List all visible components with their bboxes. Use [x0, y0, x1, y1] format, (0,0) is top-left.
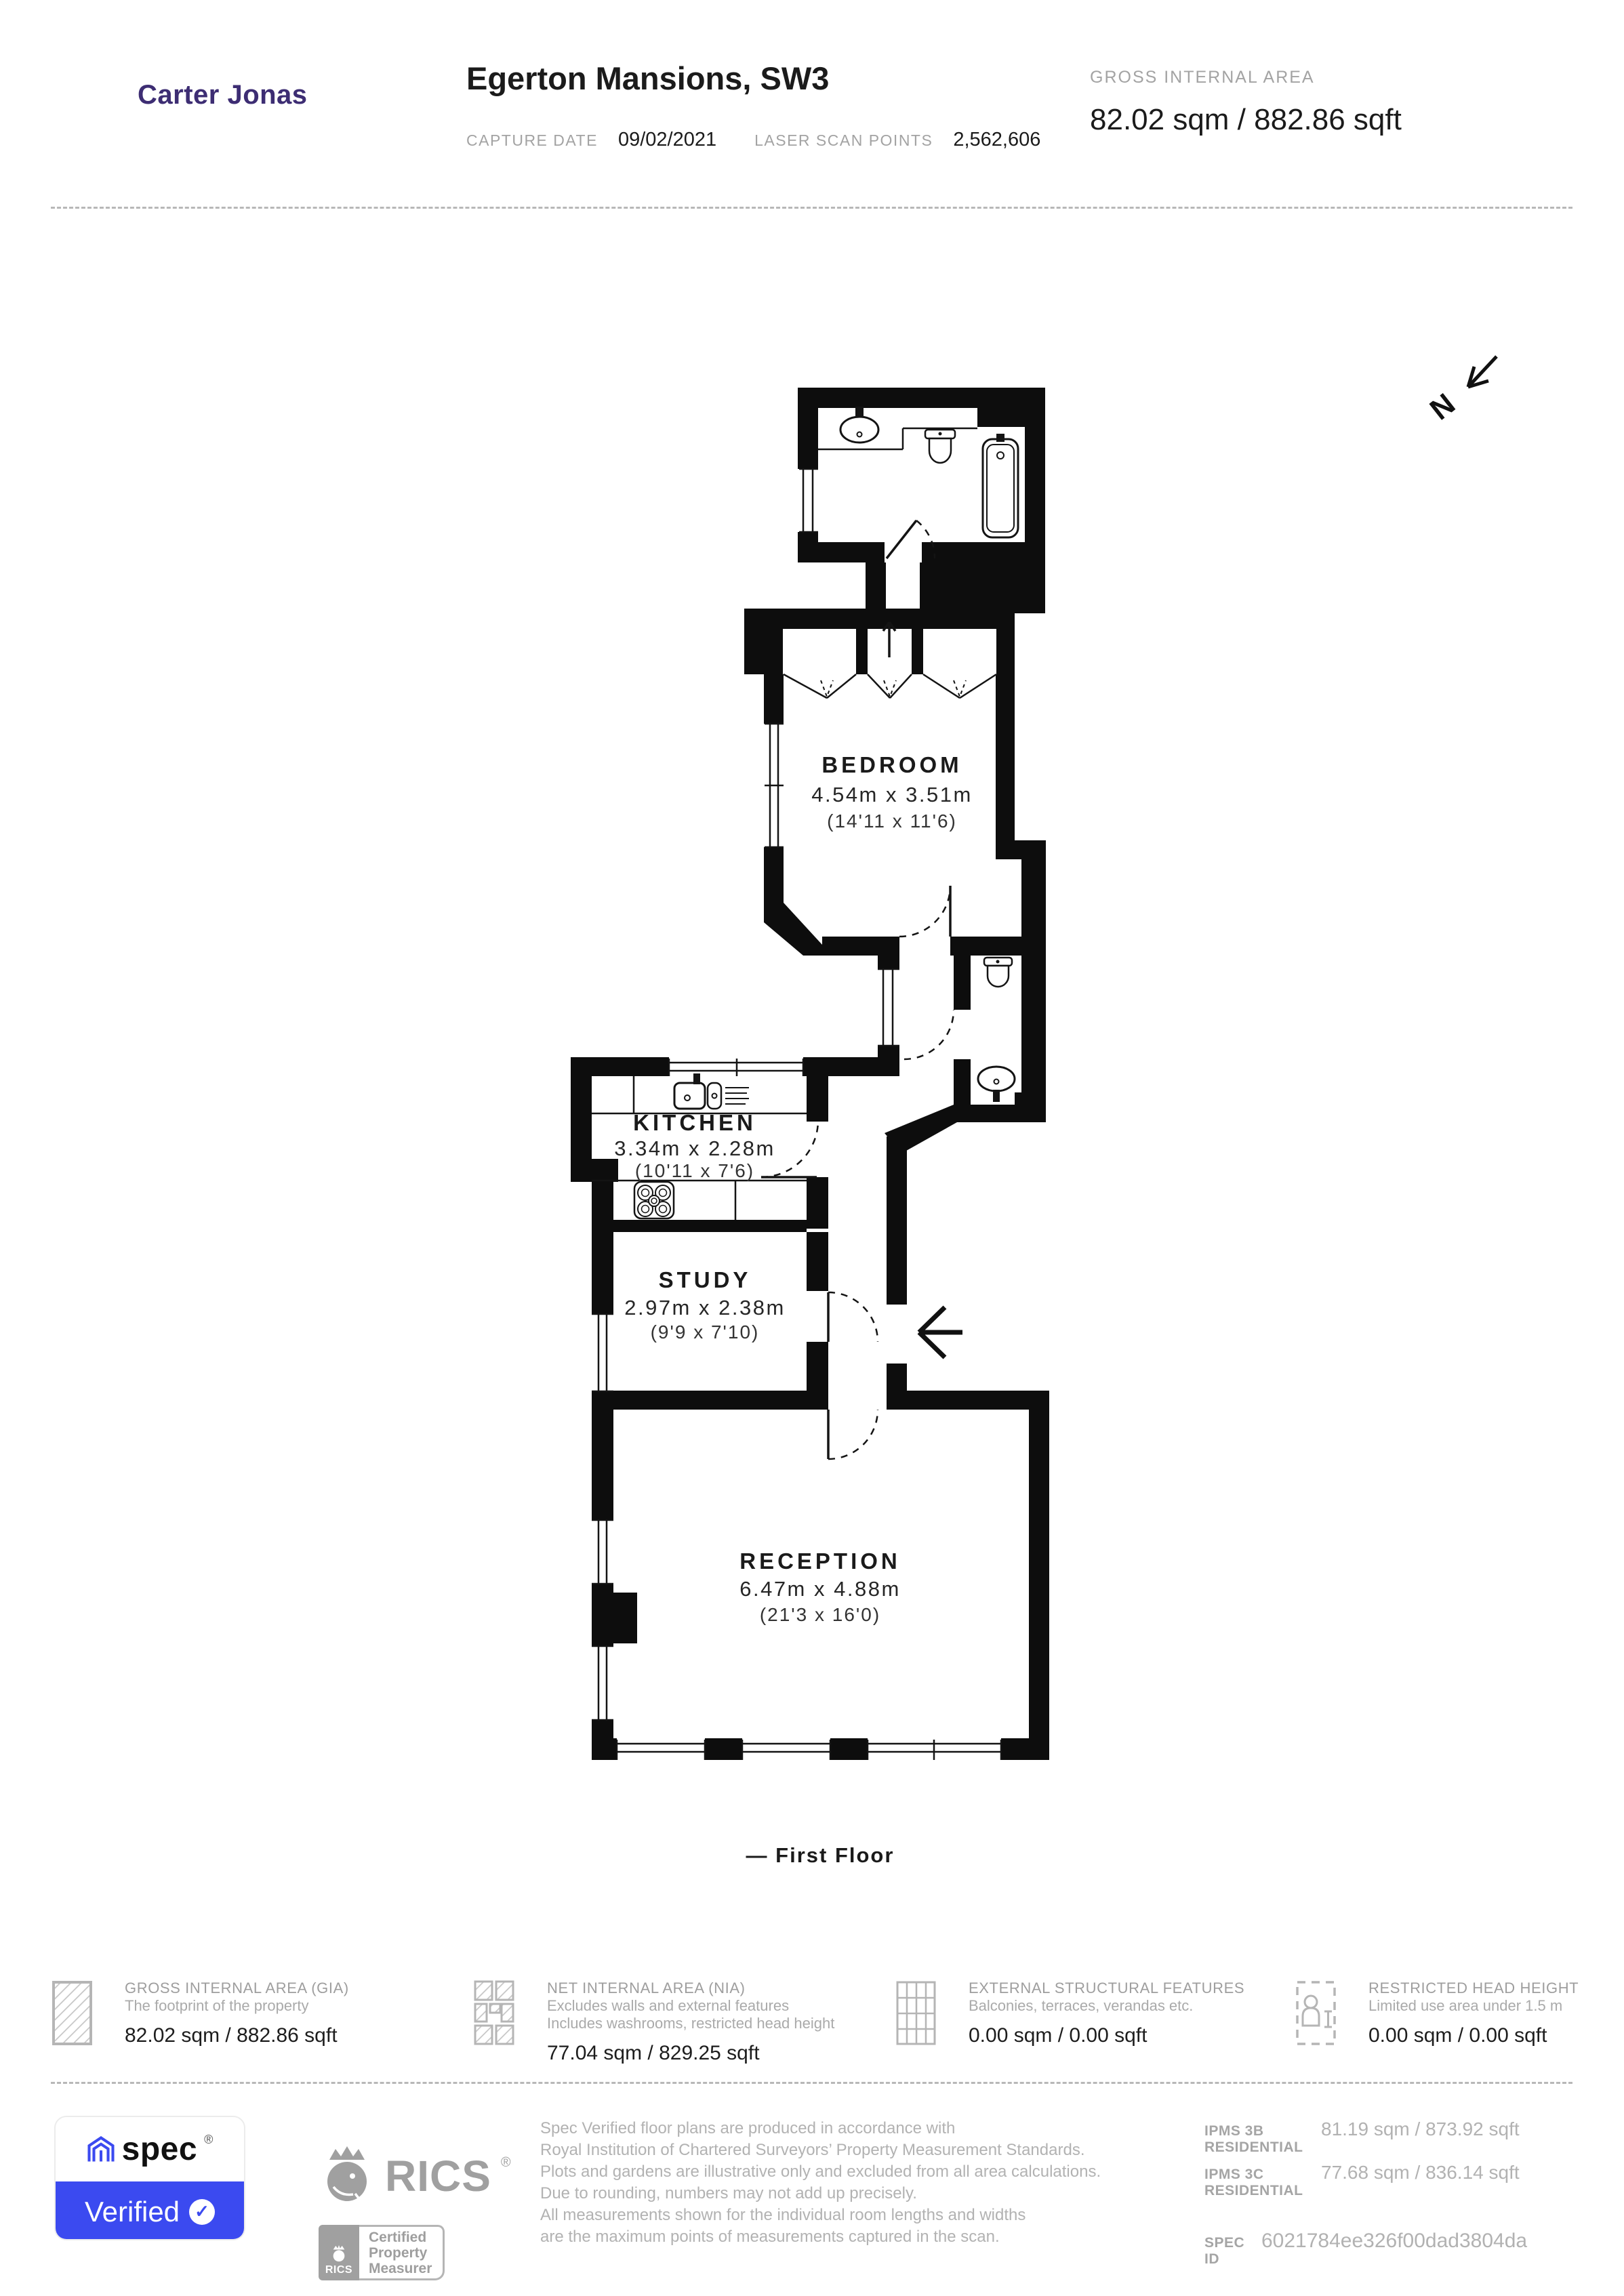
ipms-3c-value: 77.68 sqm / 836.14 sqft: [1321, 2162, 1520, 2184]
legend-esf: EXTERNAL STRUCTURAL FEATURES Balconies, …: [895, 1979, 1275, 2047]
kitchen-sink-icon: [674, 1073, 749, 1109]
cpm-rics-label: RICS: [325, 2264, 352, 2276]
cpm-lion-icon: [330, 2244, 348, 2264]
wc-toilet-icon: [984, 958, 1012, 987]
legend-gia-title: GROSS INTERNAL AREA (GIA): [125, 1979, 431, 1997]
spec-registered-mark: ®: [204, 2133, 213, 2147]
wc-sink-icon: [978, 1067, 1015, 1102]
legend-rhh-value: 0.00 sqm / 0.00 sqft: [1368, 2024, 1621, 2047]
study-dimensions-metric: 2.97m x 2.38m: [624, 1296, 786, 1319]
rics-wordmark: RICS: [385, 2151, 491, 2201]
north-label: N: [1424, 387, 1461, 426]
spec-house-icon: [87, 2136, 115, 2163]
study-dimensions-imperial: (9'9 x 7'10): [651, 1321, 760, 1342]
bottom-dashed-divider: [51, 2082, 1572, 2084]
ipms-3b-value: 81.19 sqm / 873.92 sqft: [1321, 2118, 1520, 2140]
kitchen-label: KITCHEN 3.34m x 2.28m (10'11 x 7'6): [614, 1110, 775, 1181]
legend-nia: NET INTERNAL AREA (NIA) Excludes walls a…: [474, 1979, 860, 2065]
disclaimer-line: All measurements shown for the individua…: [540, 2205, 1101, 2226]
legend-esf-value: 0.00 sqm / 0.00 sqft: [969, 2024, 1275, 2047]
disclaimer-text: Spec Verified floor plans are produced i…: [540, 2118, 1101, 2248]
disclaimer-line: Royal Institution of Chartered Surveyors…: [540, 2139, 1101, 2161]
reception-dimensions-metric: 6.47m x 4.88m: [739, 1577, 901, 1601]
bedroom-dimensions-imperial: (14'11 x 11'6): [827, 811, 957, 832]
bedroom-name: BEDROOM: [821, 752, 962, 777]
check-glyph: ✓: [195, 2201, 209, 2222]
legend-nia-value: 77.04 sqm / 829.25 sqft: [547, 2042, 860, 2065]
kitchen-name: KITCHEN: [633, 1110, 756, 1135]
disclaimer-line: are the maximum points of measurements c…: [540, 2226, 1101, 2248]
ipms-3b-label: IPMS 3B RESIDENTIAL: [1204, 2123, 1321, 2156]
bathroom-sink-icon: [840, 407, 878, 443]
ipms-measurements: IPMS 3B RESIDENTIAL 81.19 sqm / 873.92 s…: [1204, 2118, 1520, 2205]
legend-nia-line1: Excludes walls and external features: [547, 1997, 860, 2015]
disclaimer-line: Spec Verified floor plans are produced i…: [540, 2118, 1101, 2139]
legend-rhh: RESTRICTED HEAD HEIGHT Limited use area …: [1295, 1979, 1621, 2047]
bedroom-dimensions-metric: 4.54m x 3.51m: [811, 783, 973, 806]
disclaimer-line: Due to rounding, numbers may not add up …: [540, 2183, 1101, 2205]
spec-verified-badge: spec ® Verified ✓: [54, 2116, 245, 2240]
verified-label: Verified: [85, 2196, 180, 2228]
legend-nia-title: NET INTERNAL AREA (NIA): [547, 1979, 860, 1997]
spec-wordmark: spec: [122, 2131, 197, 2168]
ipms-3b-row: IPMS 3B RESIDENTIAL 81.19 sqm / 873.92 s…: [1204, 2118, 1520, 2156]
legend-nia-line2: Includes washrooms, restricted head heig…: [547, 2015, 860, 2032]
reception-label: RECEPTION 6.47m x 4.88m (21'3 x 16'0): [739, 1549, 901, 1625]
hatched-puzzle-icon: [474, 1980, 516, 2047]
legend-gia: GROSS INTERNAL AREA (GIA) The footprint …: [52, 1979, 431, 2047]
hatched-rect-icon: [52, 1980, 94, 2047]
bathroom-toilet-icon: [925, 430, 955, 463]
floor-caption: — First Floor: [746, 1843, 895, 1867]
rics-registered-mark: ®: [501, 2155, 511, 2171]
reception-name: RECEPTION: [739, 1549, 901, 1574]
steps-arrow-icon: [883, 622, 895, 657]
bathtub-icon: [983, 434, 1018, 537]
legend-esf-title: EXTERNAL STRUCTURAL FEATURES: [969, 1979, 1275, 1997]
legend-gia-line1: The footprint of the property: [125, 1997, 431, 2015]
legend-rhh-title: RESTRICTED HEAD HEIGHT: [1368, 1979, 1621, 1997]
rics-logo: RICS ®: [319, 2145, 511, 2207]
spec-id-row: SPEC ID 6021784ee326f00dad3804da: [1204, 2230, 1527, 2268]
legend-esf-line1: Balconies, terraces, verandas etc.: [969, 1997, 1275, 2015]
disclaimer-line: Plots and gardens are illustrative only …: [540, 2161, 1101, 2183]
spec-id-label: SPEC ID: [1204, 2235, 1261, 2268]
ipms-3c-label: IPMS 3C RESIDENTIAL: [1204, 2167, 1321, 2199]
certified-property-measurer-badge: RICS Certified Property Measurer: [319, 2225, 445, 2280]
study-name: STUDY: [659, 1267, 752, 1292]
cpm-rics-box: RICS: [319, 2225, 359, 2280]
north-arrow-icon: N: [1424, 356, 1497, 426]
floor-plan: N BEDROOM 4.54m x 3.51m (14'11 x 11'6) K…: [0, 0, 1624, 2296]
kitchen-dimensions-imperial: (10'11 x 7'6): [635, 1160, 754, 1181]
cpm-line3: Measurer: [369, 2261, 432, 2276]
grid-icon: [895, 1980, 937, 2047]
rics-lion-icon: [319, 2145, 375, 2207]
ipms-3c-row: IPMS 3C RESIDENTIAL 77.68 sqm / 836.14 s…: [1204, 2162, 1520, 2199]
legend-rhh-line1: Limited use area under 1.5 m: [1368, 1997, 1621, 2015]
kitchen-dimensions-metric: 3.34m x 2.28m: [614, 1136, 775, 1160]
spec-id-value: 6021784ee326f00dad3804da: [1261, 2230, 1527, 2253]
person-height-icon: [1295, 1980, 1337, 2047]
verified-check-icon: ✓: [189, 2199, 215, 2225]
hob-icon: [634, 1182, 674, 1218]
reception-dimensions-imperial: (21'3 x 16'0): [760, 1604, 880, 1625]
study-label: STUDY 2.97m x 2.38m (9'9 x 7'10): [624, 1267, 786, 1342]
entrance-arrow-icon: [919, 1307, 962, 1357]
floorplan-page: Carter Jonas Egerton Mansions, SW3 CAPTU…: [0, 0, 1624, 2296]
cpm-line1: Certified: [369, 2230, 432, 2245]
bay-window-lines: [784, 674, 996, 698]
cpm-line2: Property: [369, 2245, 432, 2261]
bedroom-label: BEDROOM 4.54m x 3.51m (14'11 x 11'6): [811, 752, 973, 832]
legend-gia-value: 82.02 sqm / 882.86 sqft: [125, 2024, 431, 2047]
